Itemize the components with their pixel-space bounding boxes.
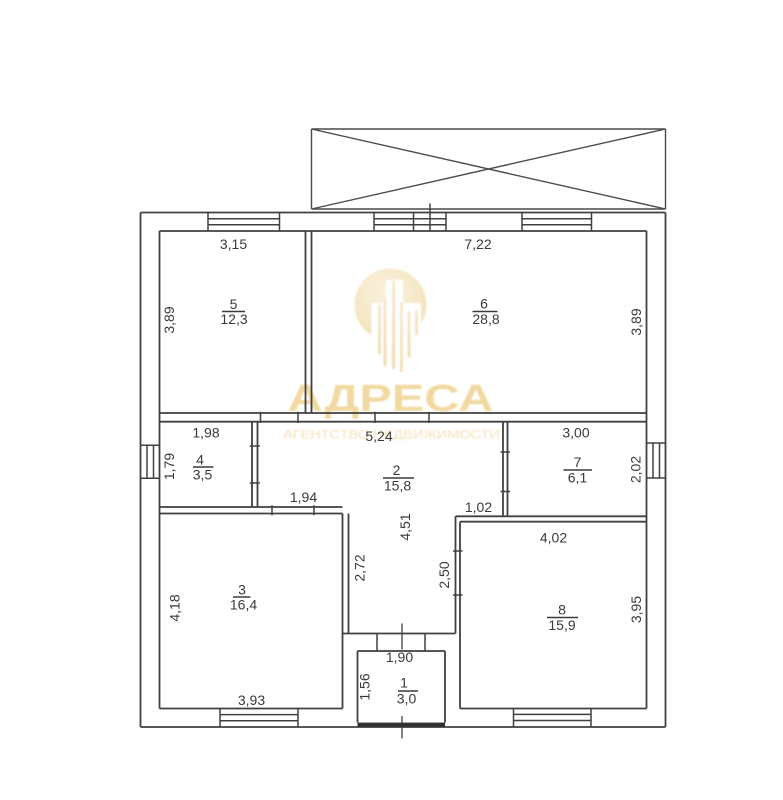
svg-text:3,89: 3,89 — [628, 308, 644, 335]
svg-text:1,56: 1,56 — [357, 673, 373, 700]
svg-text:3,5: 3,5 — [193, 467, 213, 483]
svg-text:28,8: 28,8 — [472, 311, 499, 327]
svg-text:1,90: 1,90 — [386, 649, 413, 665]
svg-text:12,3: 12,3 — [220, 311, 247, 327]
svg-text:1,94: 1,94 — [290, 489, 317, 505]
svg-text:8: 8 — [558, 602, 566, 618]
svg-text:4,18: 4,18 — [167, 594, 183, 621]
svg-text:7,22: 7,22 — [464, 236, 491, 252]
svg-text:6,1: 6,1 — [568, 470, 588, 486]
svg-text:5: 5 — [230, 296, 238, 312]
svg-text:3,95: 3,95 — [628, 596, 644, 623]
svg-text:3,00: 3,00 — [562, 425, 589, 441]
svg-text:1: 1 — [400, 675, 408, 691]
svg-text:3: 3 — [238, 582, 246, 598]
svg-text:16,4: 16,4 — [230, 597, 257, 613]
svg-text:3,15: 3,15 — [220, 236, 247, 252]
svg-text:1,02: 1,02 — [465, 499, 492, 515]
svg-text:5,24: 5,24 — [365, 428, 392, 444]
svg-text:3,93: 3,93 — [238, 692, 265, 708]
svg-text:3,0: 3,0 — [397, 691, 417, 707]
svg-text:1,79: 1,79 — [161, 453, 177, 480]
svg-text:2,50: 2,50 — [436, 561, 452, 588]
svg-text:2,02: 2,02 — [628, 456, 644, 483]
svg-text:6: 6 — [480, 296, 488, 312]
svg-text:4,51: 4,51 — [397, 513, 413, 540]
svg-text:4: 4 — [196, 452, 204, 468]
svg-text:4,02: 4,02 — [540, 530, 567, 546]
svg-text:3,89: 3,89 — [161, 306, 177, 333]
svg-text:15,8: 15,8 — [384, 478, 411, 494]
svg-text:7: 7 — [574, 454, 582, 470]
svg-text:1,98: 1,98 — [192, 425, 219, 441]
svg-text:2: 2 — [393, 462, 401, 478]
svg-text:15,9: 15,9 — [548, 617, 575, 633]
svg-text:2,72: 2,72 — [352, 554, 368, 581]
